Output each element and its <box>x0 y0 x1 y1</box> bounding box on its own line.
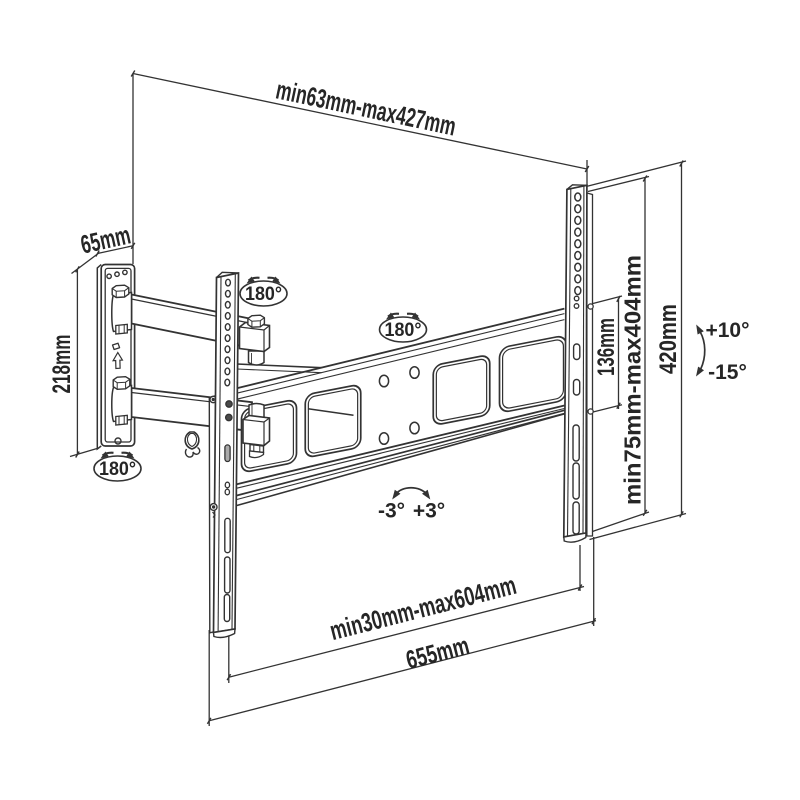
svg-text:-15°: -15° <box>708 361 747 384</box>
svg-text:+10°: +10° <box>705 319 749 342</box>
svg-text:min75mm-max404mm: min75mm-max404mm <box>620 255 646 505</box>
svg-text:218mm: 218mm <box>48 335 76 394</box>
svg-text:-3°: -3° <box>378 500 405 523</box>
svg-text:180°: 180° <box>245 283 282 305</box>
svg-text:180°: 180° <box>99 458 136 480</box>
svg-text:180°: 180° <box>385 319 422 341</box>
svg-text:136mm: 136mm <box>593 318 620 376</box>
svg-text:+3°: +3° <box>413 500 445 523</box>
svg-text:420mm: 420mm <box>655 304 682 374</box>
